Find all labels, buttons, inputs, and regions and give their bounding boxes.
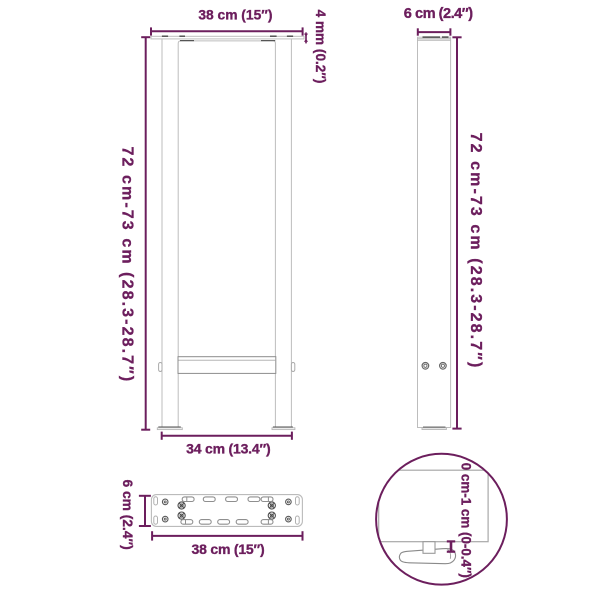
svg-text:6 cm (2.4″): 6 cm (2.4″) bbox=[404, 6, 473, 22]
svg-text:72 cm-73 cm (28.3-28.7″): 72 cm-73 cm (28.3-28.7″) bbox=[467, 133, 484, 370]
svg-text:4 mm (0.2″): 4 mm (0.2″) bbox=[313, 10, 328, 84]
svg-text:72 cm-73 cm (28.3-28.7″): 72 cm-73 cm (28.3-28.7″) bbox=[119, 146, 136, 383]
svg-text:6 cm (2.4″): 6 cm (2.4″) bbox=[120, 479, 135, 549]
svg-text:38 cm (15″): 38 cm (15″) bbox=[198, 8, 272, 23]
svg-text:38 cm (15″): 38 cm (15″) bbox=[192, 541, 265, 557]
svg-text:34 cm (13.4″): 34 cm (13.4″) bbox=[186, 441, 270, 457]
svg-text:0 cm-1 cm (0-0.4″): 0 cm-1 cm (0-0.4″) bbox=[458, 463, 473, 578]
